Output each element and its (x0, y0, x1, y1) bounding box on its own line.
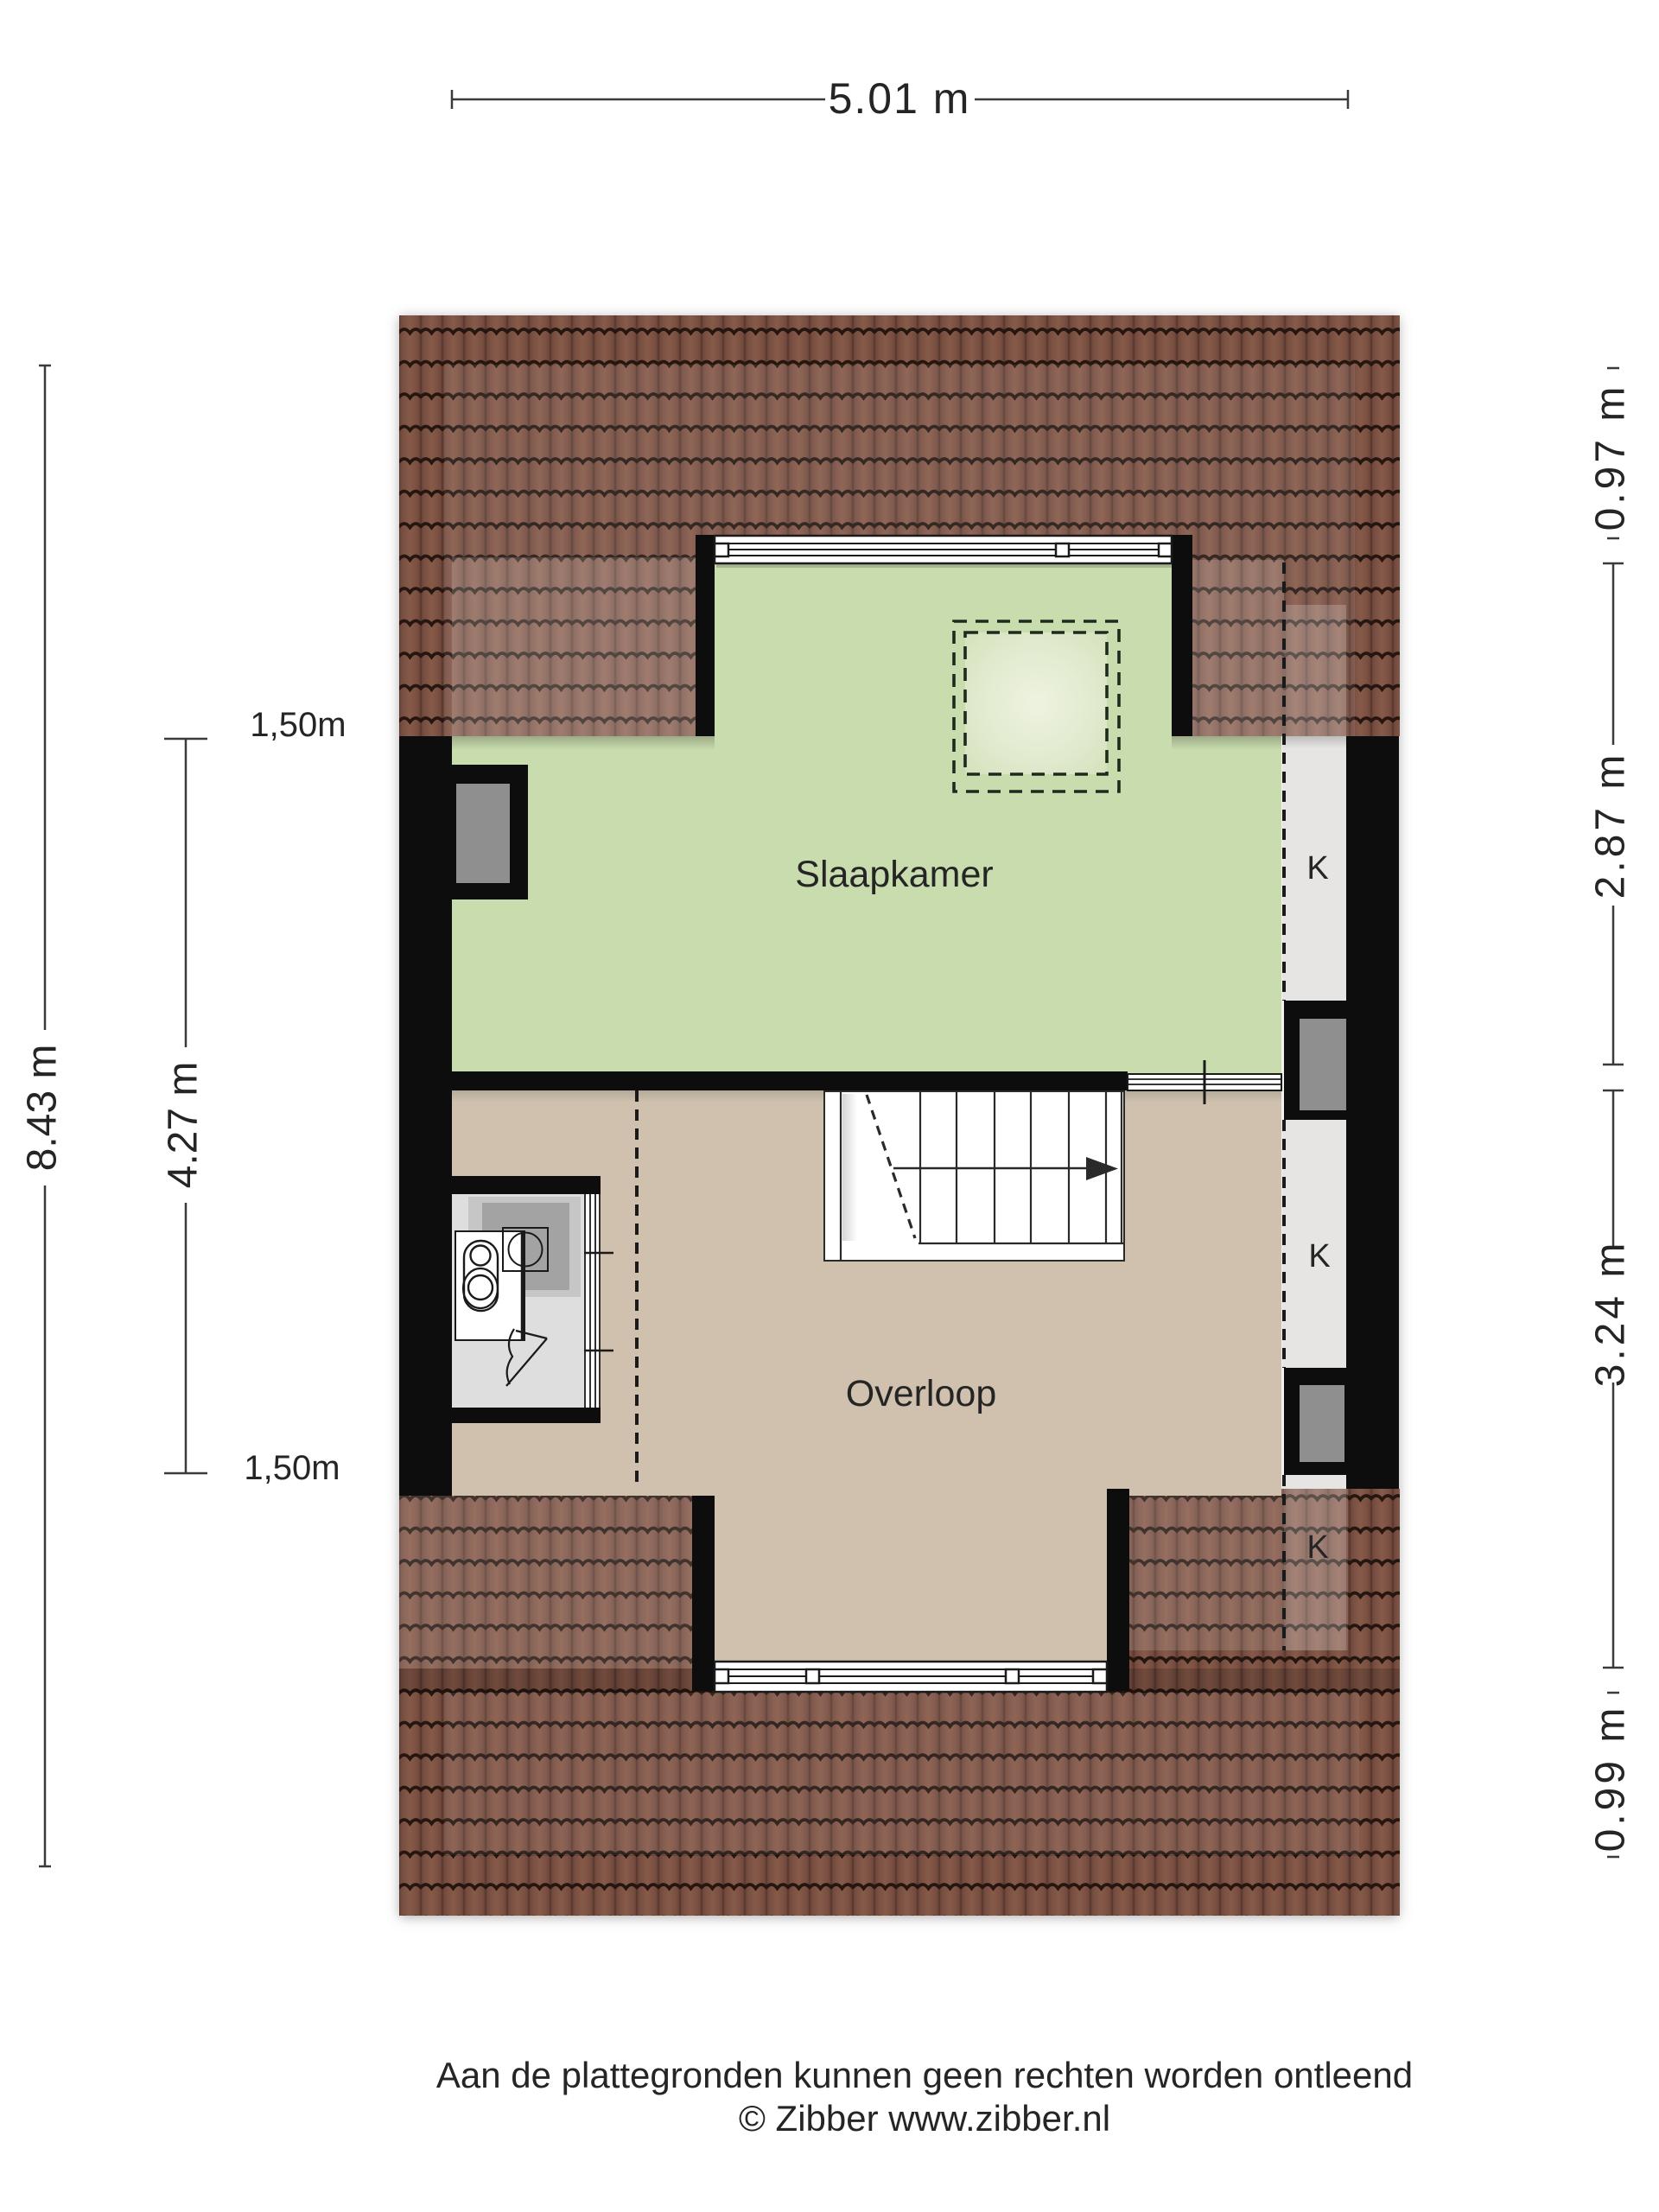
svg-text:K: K (1308, 1238, 1330, 1274)
svg-text:Overloop: Overloop (846, 1373, 996, 1414)
svg-text:K: K (1306, 1529, 1328, 1566)
svg-text:1,50m: 1,50m (244, 1449, 340, 1487)
svg-text:4.27 m: 4.27 m (161, 1062, 207, 1189)
svg-text:2.87 m: 2.87 m (1588, 752, 1634, 899)
svg-text:3.24 m: 3.24 m (1588, 1240, 1634, 1388)
svg-text:Slaapkamer: Slaapkamer (795, 854, 993, 895)
svg-text:© Zibber www.zibber.nl: © Zibber www.zibber.nl (739, 2098, 1110, 2139)
svg-text:5.01 m: 5.01 m (829, 74, 971, 123)
svg-text:0.97 m: 0.97 m (1588, 384, 1634, 531)
svg-text:8.43 m: 8.43 m (20, 1045, 66, 1172)
svg-text:0.99 m: 0.99 m (1588, 1705, 1634, 1853)
svg-text:Aan de plattegronden kunnen ge: Aan de plattegronden kunnen geen rechten… (436, 2055, 1413, 2095)
svg-text:K: K (1306, 850, 1328, 887)
svg-text:1,50m: 1,50m (250, 706, 346, 744)
